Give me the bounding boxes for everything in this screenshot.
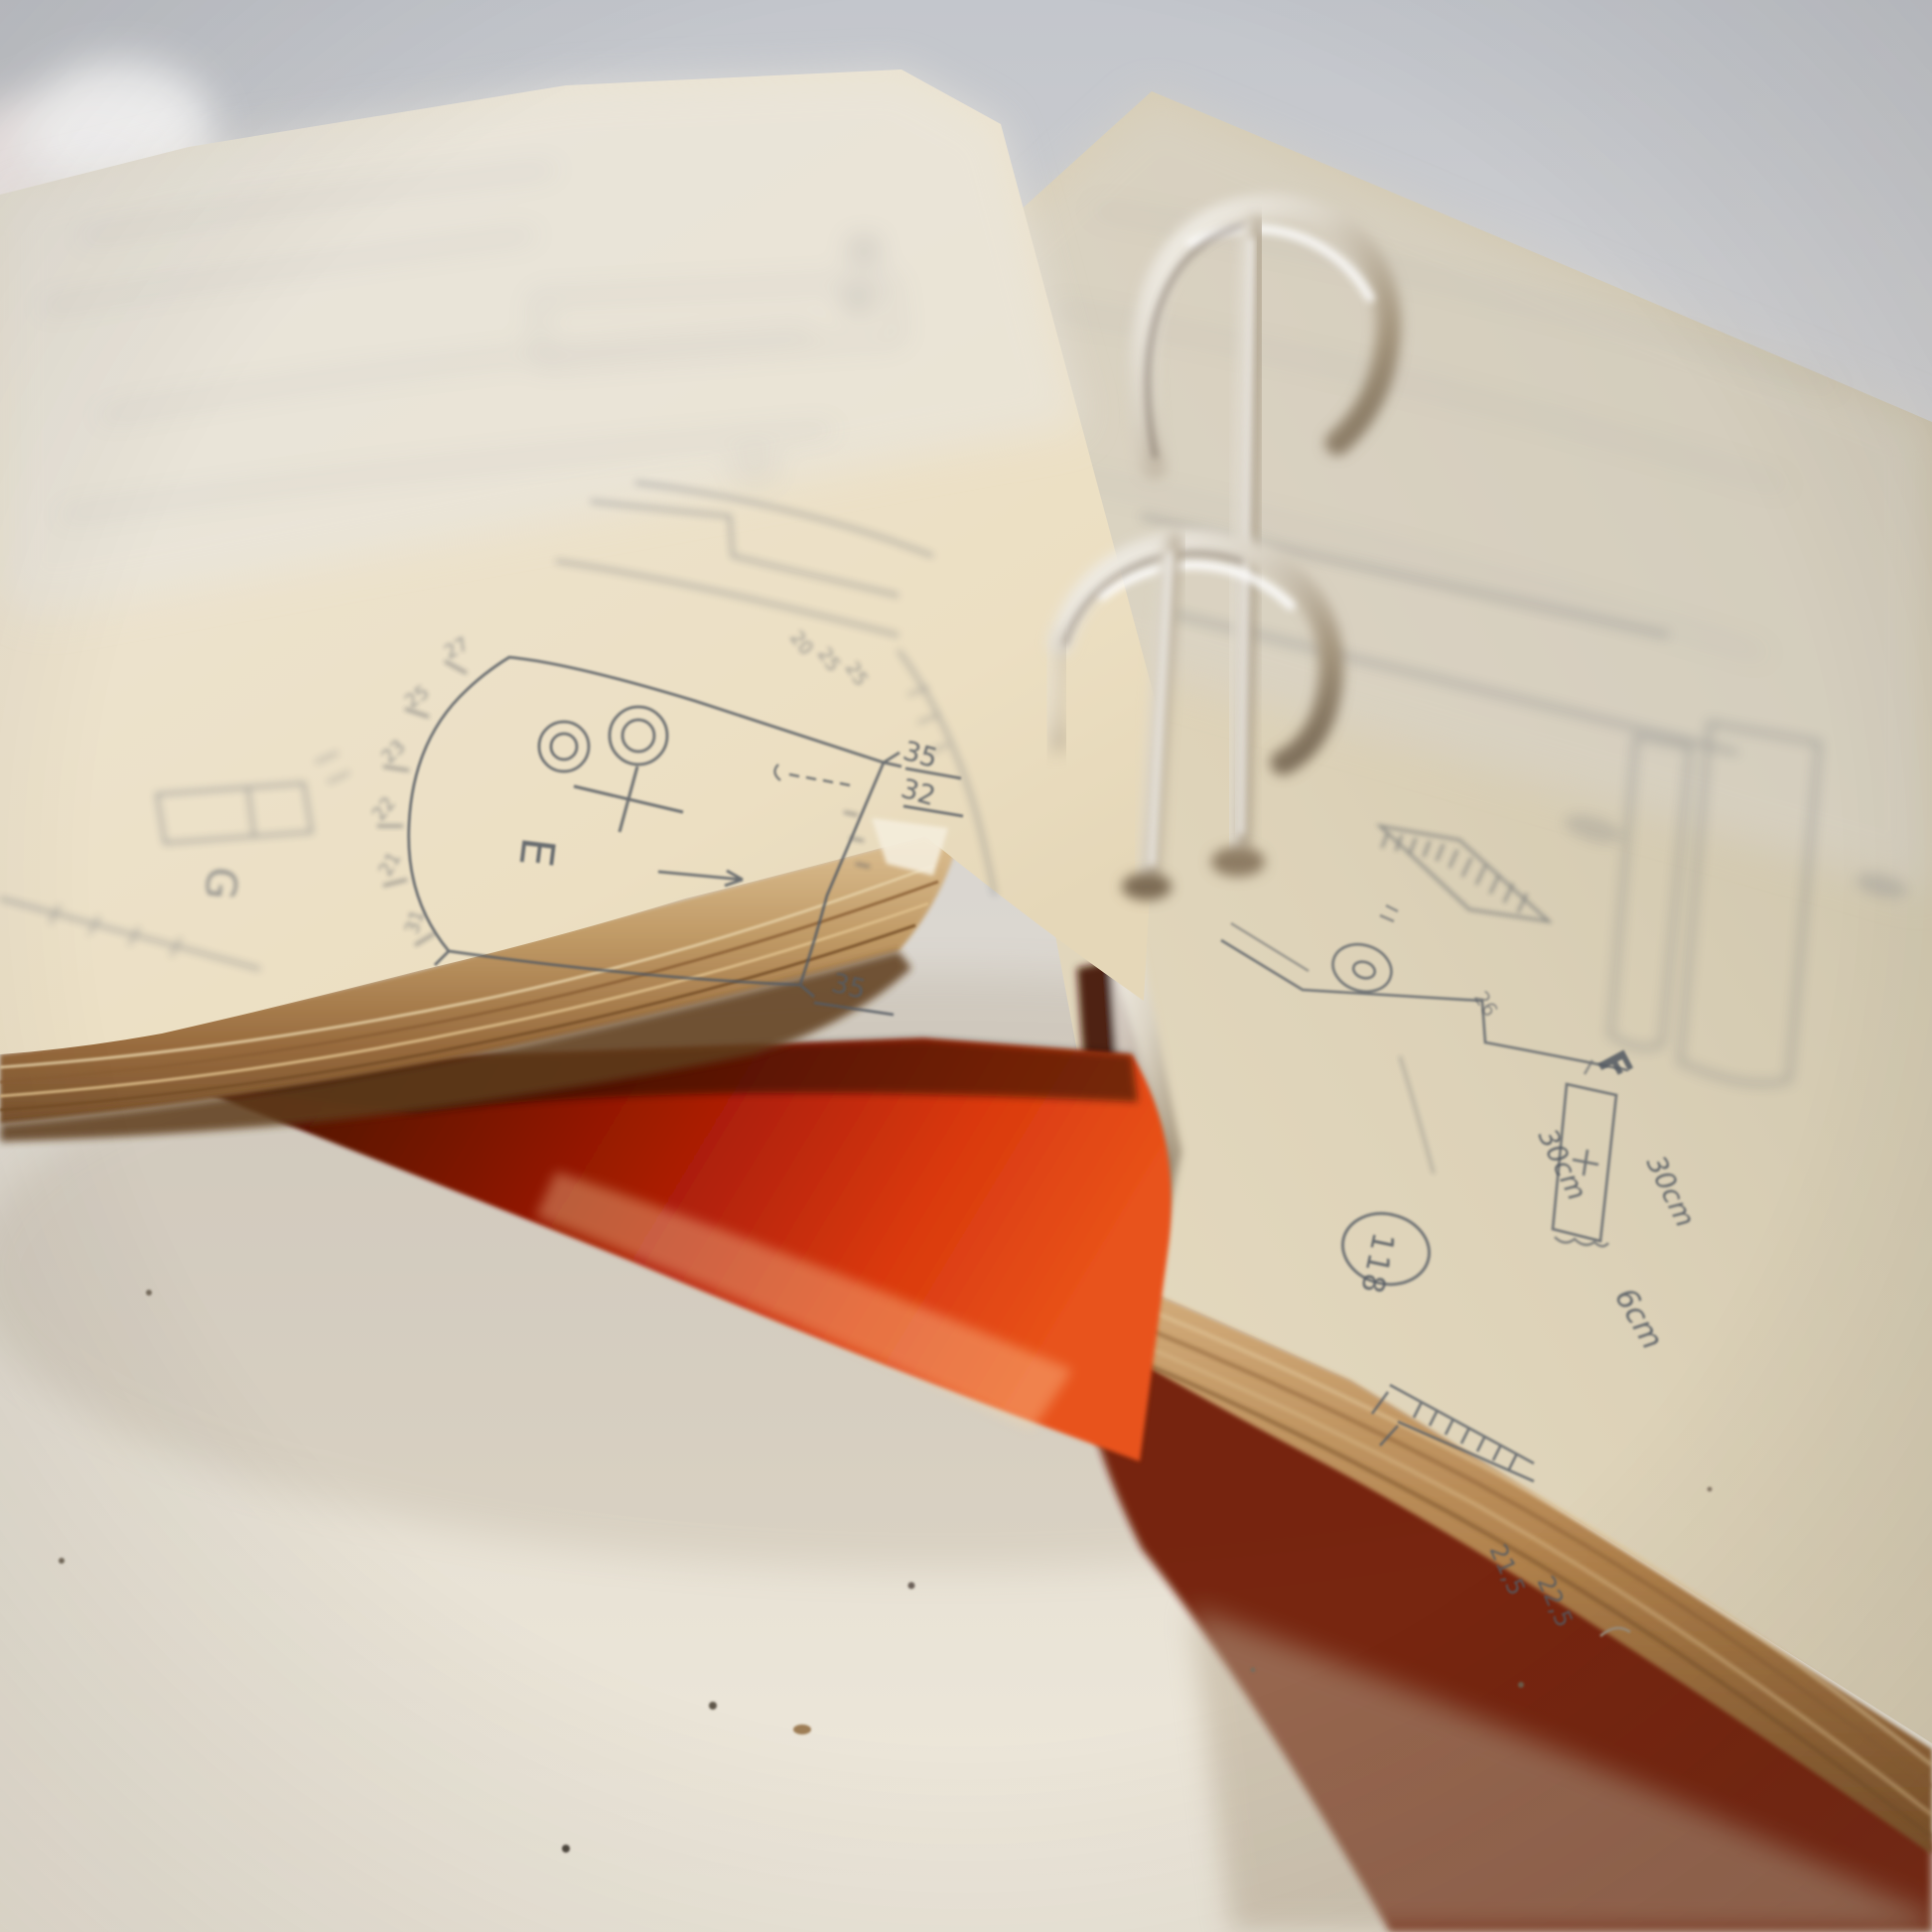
photo-canvas: F 30cm 30cm 6cm 26 118 21,5 22,5	[0, 0, 1932, 1932]
photo-vignette	[0, 0, 1932, 1932]
photo-open-pattern-binder: F 30cm 30cm 6cm 26 118 21,5 22,5	[0, 0, 1932, 1932]
